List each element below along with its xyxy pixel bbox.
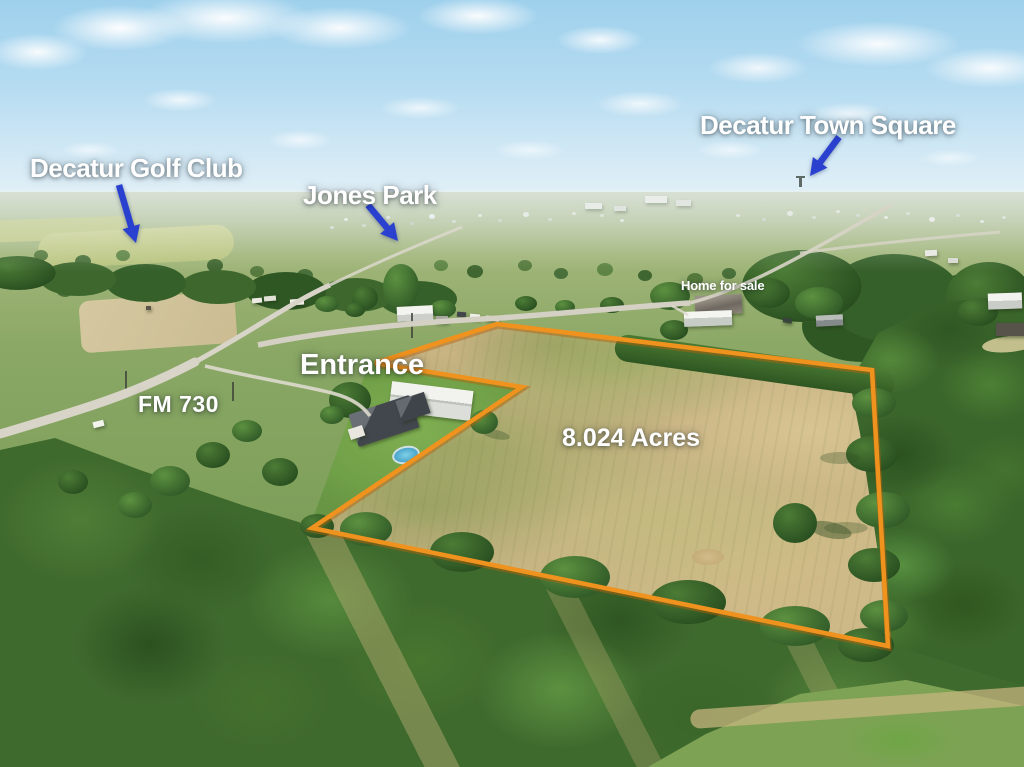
street-tree bbox=[555, 300, 575, 314]
label-jones-park: Jones Park bbox=[303, 180, 437, 211]
gray-shed bbox=[436, 316, 448, 323]
dark-barn bbox=[996, 323, 1024, 336]
pasture-tree bbox=[118, 492, 152, 518]
utility-pole bbox=[411, 313, 413, 338]
tree-canopy bbox=[856, 492, 910, 528]
home-for-sale-barn bbox=[684, 310, 732, 327]
lot-tree bbox=[320, 406, 344, 424]
tree-canopy bbox=[650, 580, 726, 624]
tree-canopy bbox=[340, 512, 392, 546]
atmospheric-haze bbox=[0, 190, 1024, 272]
street-tree bbox=[600, 297, 624, 313]
label-acreage: 8.024 Acres bbox=[562, 424, 700, 453]
parked-trailer bbox=[264, 295, 276, 301]
house-white-roof bbox=[397, 305, 434, 322]
lone-tree bbox=[773, 503, 817, 543]
parked-trailer bbox=[252, 298, 262, 304]
distant-trees bbox=[0, 0, 10, 7]
farm-object bbox=[146, 306, 151, 310]
bare-spot bbox=[692, 549, 724, 565]
gray-shed bbox=[816, 314, 844, 326]
label-town-square: Decatur Town Square bbox=[700, 110, 956, 141]
label-home-for-sale: Home for sale bbox=[681, 278, 764, 293]
street-tree bbox=[345, 303, 365, 317]
street-tree bbox=[515, 296, 537, 311]
label-golf-club: Decatur Golf Club bbox=[30, 153, 243, 184]
car-white bbox=[470, 314, 480, 320]
tree-canopy bbox=[838, 628, 894, 662]
tree-canopy bbox=[430, 532, 494, 572]
label-fm-730: FM 730 bbox=[138, 391, 219, 418]
pasture-tree bbox=[232, 420, 262, 442]
parked-trailer bbox=[290, 299, 304, 306]
utility-pole bbox=[125, 371, 127, 392]
tree-canopy bbox=[300, 514, 334, 538]
tree-shadow bbox=[820, 452, 860, 464]
aerial-photo: Decatur Golf Club Jones Park Decatur Tow… bbox=[0, 0, 1024, 767]
tree-canopy bbox=[848, 548, 900, 582]
white-barn bbox=[988, 292, 1023, 309]
pasture-tree bbox=[262, 458, 298, 486]
pasture-tree bbox=[58, 470, 88, 494]
pasture-tree bbox=[196, 442, 230, 468]
utility-pole bbox=[232, 382, 234, 401]
tree-canopy bbox=[540, 556, 610, 598]
tree-canopy bbox=[760, 606, 830, 646]
water-tower-top bbox=[796, 176, 805, 178]
tree-canopy bbox=[860, 600, 908, 632]
tree-canopy bbox=[852, 388, 896, 418]
street-tree bbox=[315, 296, 339, 312]
label-entrance: Entrance bbox=[300, 349, 424, 382]
car-dark bbox=[457, 312, 466, 318]
pasture-tree bbox=[150, 466, 190, 496]
bare-dirt-field bbox=[78, 291, 237, 354]
lot-tree bbox=[470, 410, 498, 434]
